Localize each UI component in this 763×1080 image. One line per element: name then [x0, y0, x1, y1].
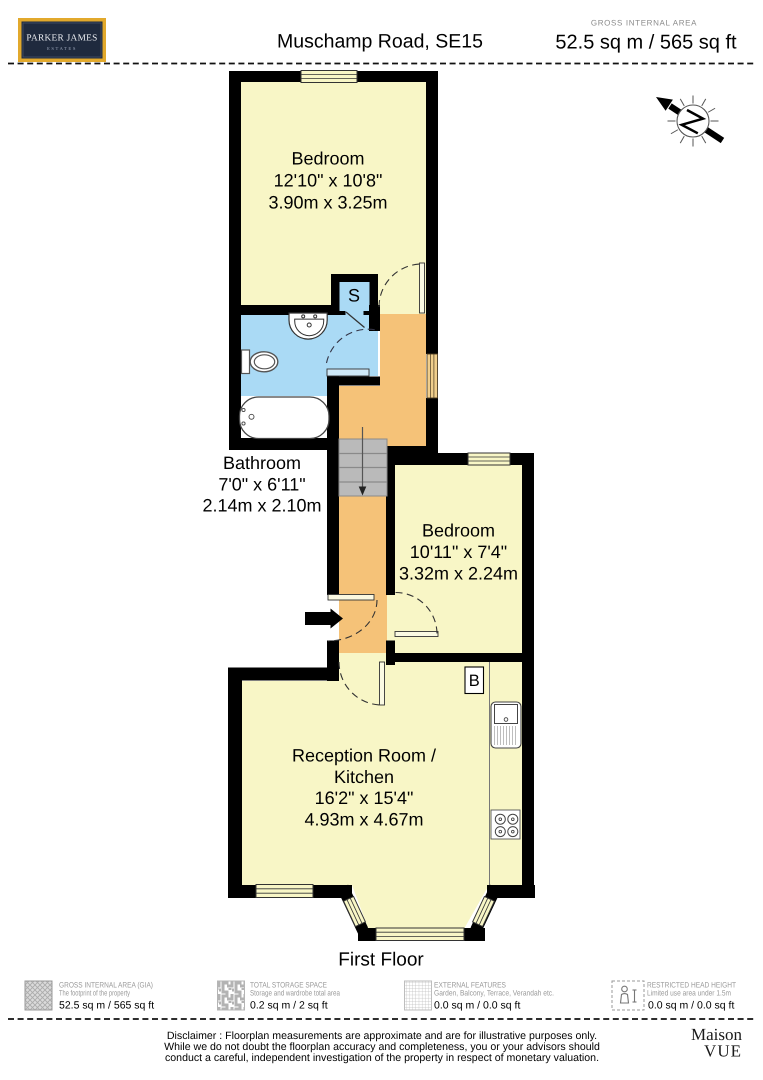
- svg-text:Storage and wardrobe total are: Storage and wardrobe total area: [250, 989, 341, 998]
- svg-text:10'11" x 7'4": 10'11" x 7'4": [410, 542, 507, 562]
- svg-text:S: S: [348, 286, 360, 306]
- svg-text:52.5 sq m / 565 sq ft: 52.5 sq m / 565 sq ft: [59, 1000, 154, 1012]
- svg-text:Muschamp Road, SE15: Muschamp Road, SE15: [277, 31, 483, 53]
- svg-text:0.0 sq m / 0.0 sq ft: 0.0 sq m / 0.0 sq ft: [648, 1000, 734, 1012]
- svg-text:3.32m x 2.24m: 3.32m x 2.24m: [399, 564, 518, 584]
- svg-text:Bathroom: Bathroom: [223, 453, 301, 473]
- svg-text:ESTATES: ESTATES: [47, 46, 77, 51]
- svg-text:B: B: [469, 672, 480, 690]
- svg-text:Kitchen: Kitchen: [334, 767, 394, 787]
- svg-text:Bedroom: Bedroom: [291, 149, 364, 169]
- svg-text:First Floor: First Floor: [338, 950, 424, 971]
- svg-text:16'2" x 15'4": 16'2" x 15'4": [315, 788, 414, 808]
- svg-text:12'10" x 10'8": 12'10" x 10'8": [274, 171, 383, 191]
- svg-text:Reception Room /: Reception Room /: [292, 746, 436, 766]
- svg-text:GROSS INTERNAL AREA: GROSS INTERNAL AREA: [591, 19, 697, 28]
- svg-text:7'0" x 6'11": 7'0" x 6'11": [218, 475, 305, 495]
- svg-text:0.2 sq m / 2 sq ft: 0.2 sq m / 2 sq ft: [250, 1000, 328, 1012]
- svg-text:conduct a careful, independent: conduct a careful, independent investiga…: [165, 1052, 599, 1064]
- svg-text:4.93m x 4.67m: 4.93m x 4.67m: [304, 809, 423, 829]
- svg-text:VUE: VUE: [704, 1042, 742, 1061]
- svg-text:Limited use area under 1.5m: Limited use area under 1.5m: [647, 989, 731, 998]
- svg-text:0.0 sq m / 0.0 sq ft: 0.0 sq m / 0.0 sq ft: [434, 1000, 520, 1012]
- svg-text:Garden, Balcony, Terrace, Vera: Garden, Balcony, Terrace, Verandah etc.: [434, 989, 554, 998]
- svg-text:3.90m x 3.25m: 3.90m x 3.25m: [268, 193, 387, 213]
- svg-text:2.14m x 2.10m: 2.14m x 2.10m: [202, 496, 321, 516]
- svg-text:The footprint of the property: The footprint of the property: [59, 989, 130, 998]
- svg-text:PARKER JAMES: PARKER JAMES: [26, 34, 97, 44]
- svg-text:Bedroom: Bedroom: [422, 521, 495, 541]
- svg-text:52.5 sq m / 565 sq ft: 52.5 sq m / 565 sq ft: [555, 32, 737, 54]
